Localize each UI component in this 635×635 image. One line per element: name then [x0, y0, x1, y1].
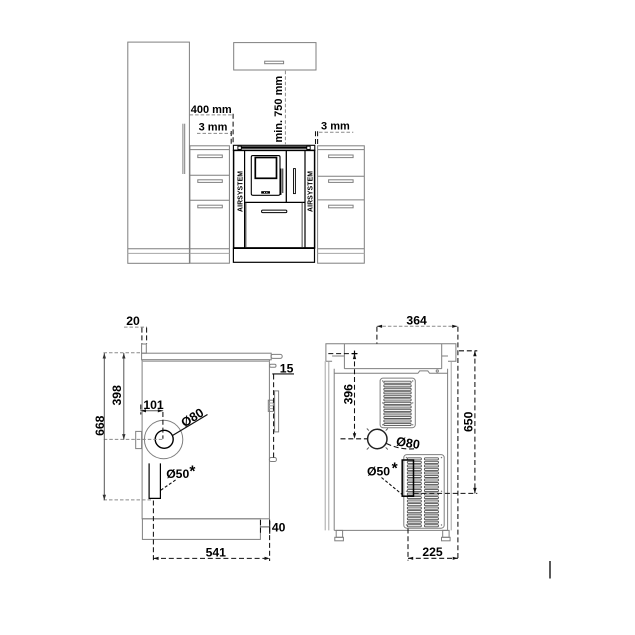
svg-text:650: 650 — [462, 411, 476, 432]
svg-text:20: 20 — [126, 314, 140, 328]
svg-text:AIRSYSTEM: AIRSYSTEM — [307, 171, 314, 212]
svg-text:Ø50: Ø50 — [166, 467, 189, 481]
svg-text:225: 225 — [422, 545, 443, 559]
svg-text:398: 398 — [110, 385, 124, 406]
svg-text:668: 668 — [93, 415, 107, 436]
svg-text:AIRSYSTEM: AIRSYSTEM — [237, 171, 244, 212]
svg-text:101: 101 — [143, 398, 164, 412]
svg-text:min. 750 mm: min. 750 mm — [273, 76, 285, 143]
svg-text:396: 396 — [341, 384, 355, 405]
svg-text:364: 364 — [406, 314, 427, 328]
svg-text:40: 40 — [272, 521, 286, 535]
svg-text:400 mm: 400 mm — [191, 104, 232, 116]
svg-text:15: 15 — [280, 361, 294, 375]
svg-text:*: * — [189, 463, 196, 480]
svg-text:Ø50: Ø50 — [367, 464, 390, 478]
svg-text:*: * — [392, 460, 399, 477]
svg-text:3 mm: 3 mm — [199, 122, 228, 134]
svg-text:541: 541 — [206, 546, 227, 560]
svg-text:3 mm: 3 mm — [321, 121, 350, 133]
